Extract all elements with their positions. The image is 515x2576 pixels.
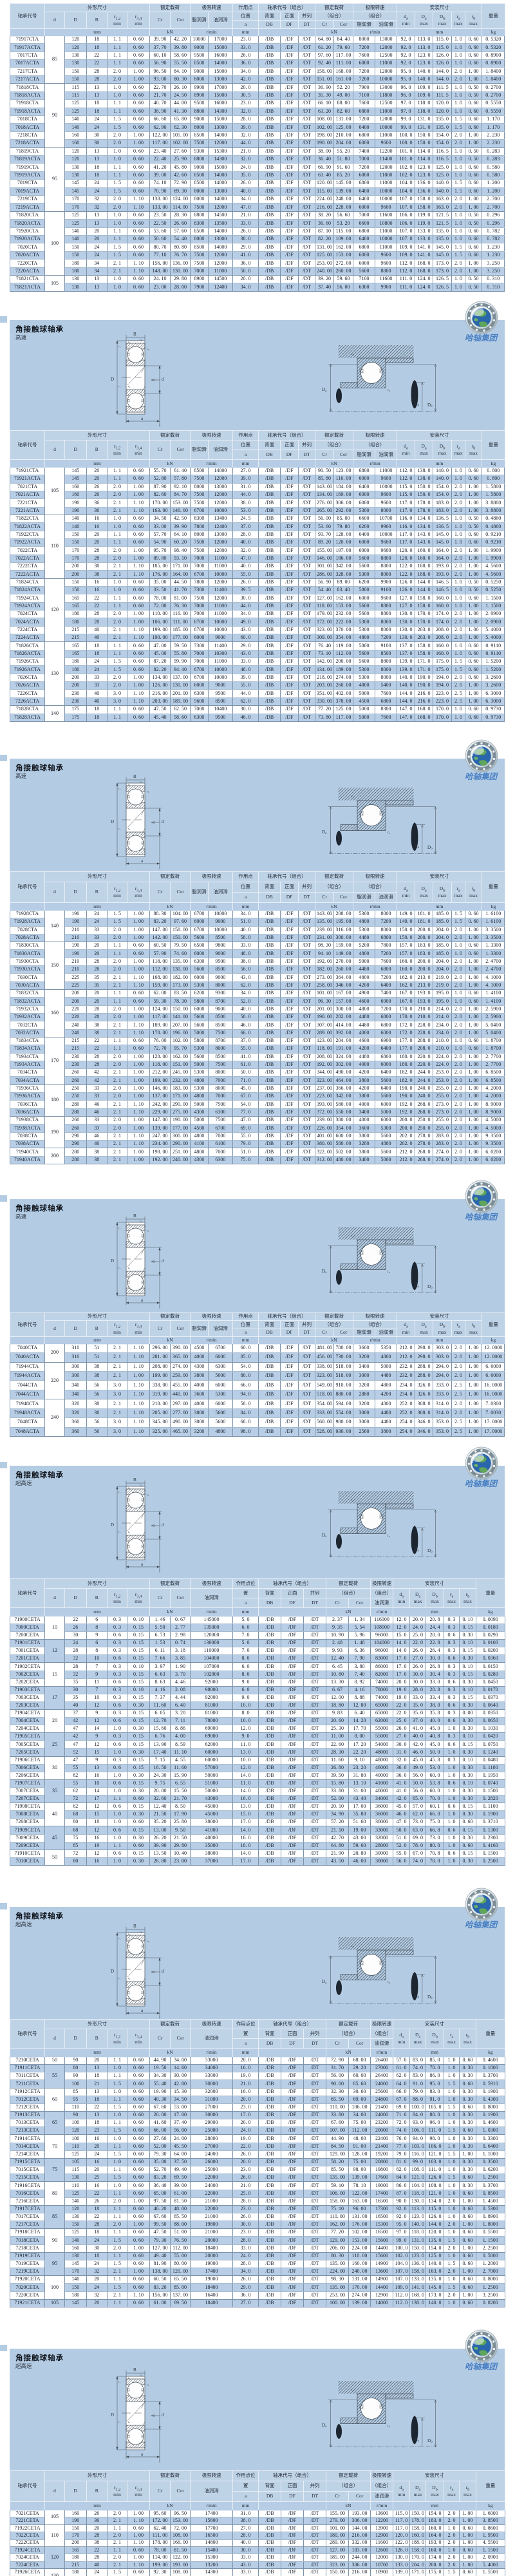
svg-text:ra: ra: [351, 1234, 354, 1238]
svg-text:D: D: [111, 819, 114, 824]
svg-text:d: d: [162, 819, 164, 824]
svg-text:da: da: [415, 401, 420, 407]
svg-text:d: d: [162, 377, 164, 382]
svg-text:r3: r3: [147, 1229, 149, 1233]
svg-text:Da: Da: [322, 387, 327, 393]
svg-text:a: a: [141, 858, 144, 864]
svg-text:Db: Db: [427, 402, 433, 408]
svg-text:a: a: [141, 1298, 144, 1303]
svg-text:r2: r2: [128, 1933, 131, 1937]
svg-text:B: B: [133, 1213, 136, 1218]
svg-text:Db: Db: [427, 1994, 433, 2000]
svg-text:哈轴集团: 哈轴集团: [465, 2362, 499, 2371]
svg-text:哈轴集团: 哈轴集团: [465, 1920, 499, 1929]
svg-text:ra: ra: [388, 1980, 390, 1984]
svg-text:a: a: [141, 2452, 144, 2457]
svg-text:D: D: [111, 2412, 114, 2418]
svg-text:Da: Da: [322, 1533, 327, 1539]
svg-text:ra: ra: [351, 2388, 354, 2392]
svg-text:r2: r2: [128, 2376, 131, 2380]
svg-text:r3: r3: [147, 347, 149, 351]
svg-text:d: d: [162, 1258, 164, 1264]
svg-text:r4: r4: [140, 1483, 142, 1487]
svg-text:r4: r4: [140, 337, 142, 341]
svg-text:Da: Da: [322, 1269, 327, 1274]
svg-text:da: da: [415, 1547, 420, 1553]
svg-text:Db: Db: [427, 1284, 433, 1290]
svg-text:ra: ra: [388, 1270, 390, 1274]
svg-text:哈轴集团: 哈轴集团: [465, 334, 499, 343]
svg-text:ra: ra: [351, 1944, 354, 1948]
svg-text:Da: Da: [322, 829, 327, 835]
svg-text:da: da: [415, 1993, 420, 1999]
svg-text:r2: r2: [128, 341, 131, 345]
svg-text:ra: ra: [388, 831, 390, 835]
svg-text:a: a: [141, 1562, 144, 1567]
svg-text:ra: ra: [388, 2424, 390, 2428]
svg-text:B: B: [133, 332, 136, 337]
svg-text:ra: ra: [351, 795, 354, 799]
svg-text:Db: Db: [427, 845, 433, 851]
svg-text:r2: r2: [128, 1486, 131, 1490]
svg-text:B: B: [133, 774, 136, 779]
svg-text:r1: r1: [118, 1530, 121, 1534]
svg-text:r1: r1: [118, 384, 121, 388]
svg-text:D: D: [111, 1522, 114, 1528]
svg-text:哈轴集团: 哈轴集团: [465, 1213, 499, 1222]
svg-text:r3: r3: [147, 2383, 149, 2387]
svg-text:r4: r4: [140, 780, 142, 784]
svg-text:r3: r3: [147, 790, 149, 793]
svg-text:D: D: [111, 377, 114, 382]
svg-text:r2: r2: [128, 2420, 131, 2424]
svg-text:B: B: [133, 1477, 136, 1482]
svg-text:哈轴集团: 哈轴集团: [465, 1479, 499, 1488]
svg-text:r2: r2: [128, 827, 131, 831]
svg-text:r2: r2: [128, 384, 131, 388]
svg-text:da: da: [415, 1283, 420, 1289]
svg-text:r1: r1: [118, 345, 121, 348]
svg-text:r2: r2: [128, 1530, 131, 1534]
svg-text:哈轴集团: 哈轴集团: [465, 772, 499, 781]
svg-text:d: d: [162, 1969, 164, 1974]
svg-text:Da: Da: [322, 2423, 327, 2429]
svg-text:ra: ra: [351, 352, 354, 356]
svg-text:Db: Db: [427, 2438, 433, 2444]
svg-text:r1: r1: [118, 1226, 121, 1230]
svg-text:d: d: [162, 1522, 164, 1528]
svg-text:ra: ra: [388, 388, 390, 392]
svg-text:r2: r2: [128, 1222, 131, 1226]
svg-text:r1: r1: [118, 1266, 121, 1270]
svg-text:r4: r4: [140, 1929, 142, 1933]
svg-text:ra: ra: [351, 1498, 354, 1502]
svg-text:r1: r1: [118, 1976, 121, 1980]
svg-text:a: a: [141, 2008, 144, 2013]
svg-text:D: D: [111, 1258, 114, 1264]
svg-text:r1: r1: [118, 1490, 121, 1494]
svg-text:Da: Da: [322, 1979, 327, 1985]
svg-text:r1: r1: [118, 2380, 121, 2384]
svg-text:r3: r3: [147, 1939, 149, 1943]
svg-text:d: d: [162, 2412, 164, 2418]
svg-text:r2: r2: [128, 783, 131, 787]
svg-text:D: D: [111, 1969, 114, 1974]
svg-text:r1: r1: [118, 1937, 121, 1940]
svg-text:Db: Db: [427, 1548, 433, 1554]
svg-text:r2: r2: [128, 1976, 131, 1980]
svg-text:B: B: [133, 1924, 136, 1929]
svg-text:ra: ra: [388, 1534, 390, 1538]
svg-text:r2: r2: [128, 1266, 131, 1270]
svg-text:da: da: [415, 2437, 420, 2443]
svg-text:r4: r4: [140, 2373, 142, 2377]
svg-text:da: da: [415, 844, 420, 849]
svg-text:r4: r4: [140, 1219, 142, 1223]
svg-text:r1: r1: [118, 827, 121, 831]
svg-text:r1: r1: [118, 2420, 121, 2424]
svg-text:a: a: [141, 416, 144, 421]
svg-text:r1: r1: [118, 787, 121, 791]
svg-text:B: B: [133, 2367, 136, 2372]
svg-text:r3: r3: [147, 1493, 149, 1497]
